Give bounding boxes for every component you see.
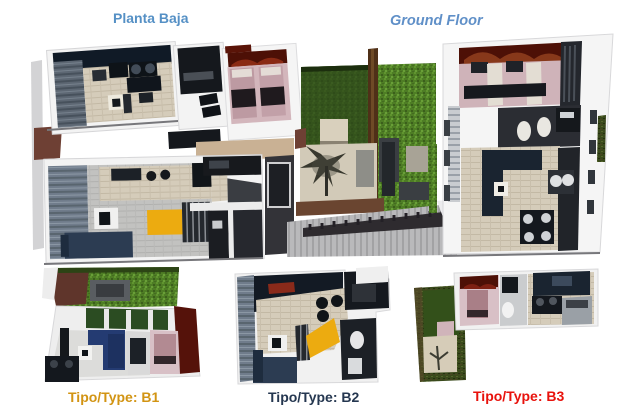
- svg-text:Tipo/Type: B3: Tipo/Type: B3: [473, 388, 564, 404]
- svg-text:Tipo/Type: B1: Tipo/Type: B1: [68, 389, 159, 405]
- svg-text:Planta Baja: Planta Baja: [113, 10, 189, 26]
- svg-text:Ground Floor: Ground Floor: [390, 13, 484, 29]
- svg-text:Tipo/Type: B2: Tipo/Type: B2: [268, 389, 359, 405]
